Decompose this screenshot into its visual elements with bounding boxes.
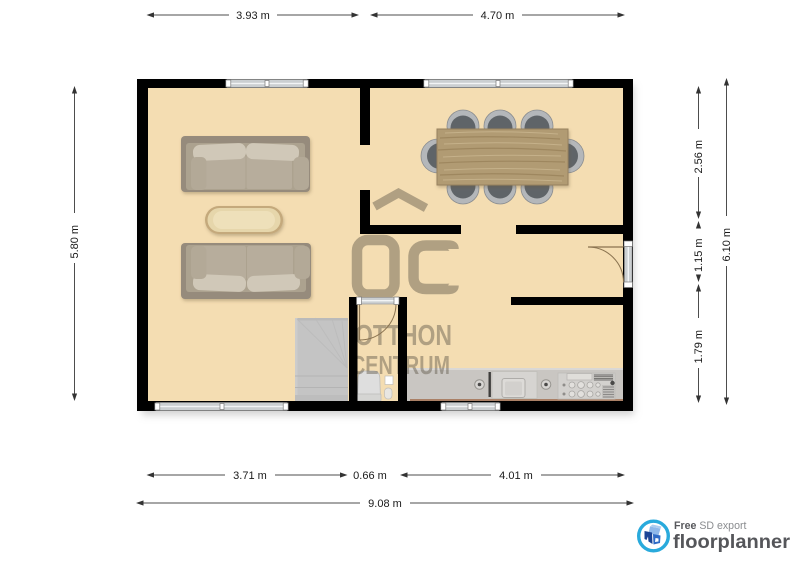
svg-text:floorplanner: floorplanner: [673, 532, 791, 553]
svg-text:6.10 m: 6.10 m: [721, 228, 733, 262]
svg-text:1.15 m: 1.15 m: [693, 238, 705, 272]
svg-text:Free SD export: Free SD export: [674, 520, 746, 532]
svg-text:2.56 m: 2.56 m: [693, 140, 705, 174]
svg-text:3.93 m: 3.93 m: [236, 10, 270, 22]
svg-text:4.70 m: 4.70 m: [481, 10, 515, 22]
svg-text:5.80 m: 5.80 m: [69, 225, 81, 259]
svg-text:3.71 m: 3.71 m: [233, 470, 267, 482]
svg-text:0.66 m: 0.66 m: [353, 470, 387, 482]
svg-text:1.79 m: 1.79 m: [693, 330, 705, 364]
svg-text:4.01 m: 4.01 m: [499, 470, 533, 482]
svg-text:9.08 m: 9.08 m: [368, 498, 402, 510]
